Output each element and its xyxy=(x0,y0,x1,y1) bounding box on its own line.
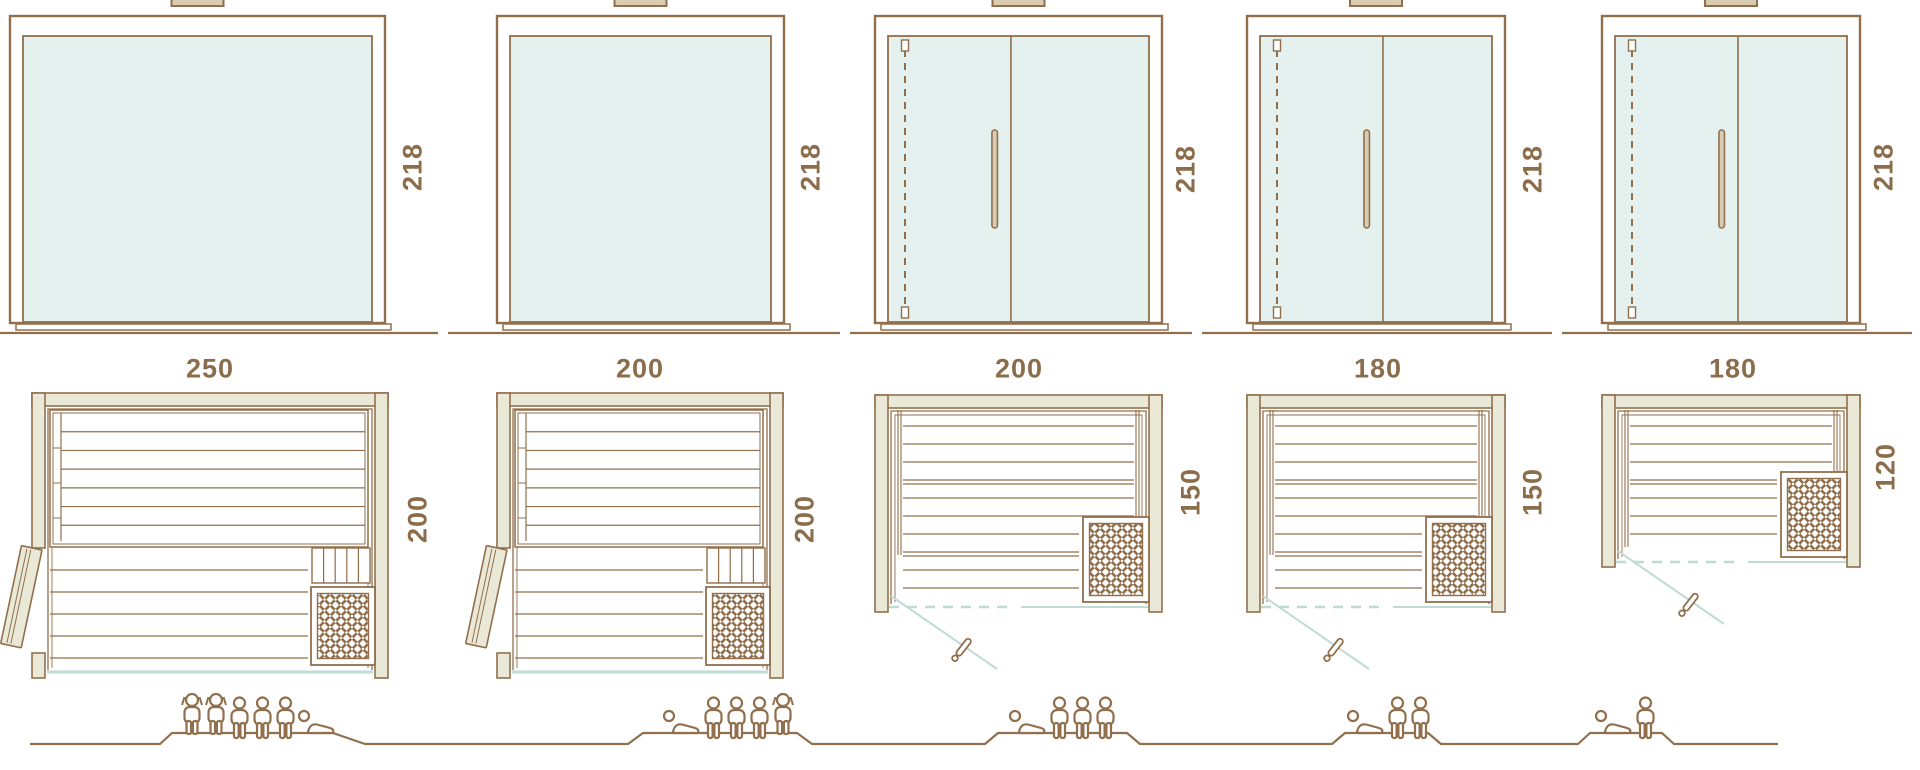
capacity-ground-row xyxy=(30,694,1778,744)
roof-vent-tab xyxy=(615,0,667,6)
sitting-person-icon xyxy=(1052,698,1068,739)
model-3-floor-plan xyxy=(875,395,1162,669)
model-2-floor-plan xyxy=(466,393,783,678)
upper-bench xyxy=(50,410,368,547)
model-1-depth-label: 200 xyxy=(403,495,434,543)
model-3-front-elevation xyxy=(850,0,1192,333)
model-4-height-label: 218 xyxy=(1518,145,1549,193)
model-5-front-elevation xyxy=(1562,0,1912,333)
model-4-width-label: 180 xyxy=(1354,354,1402,385)
bench-step xyxy=(312,548,370,583)
door-hinge-icon xyxy=(902,40,909,51)
model-2-height-label: 218 xyxy=(796,143,827,191)
glass-front xyxy=(1260,36,1492,322)
model-1-capacity-icons xyxy=(182,694,333,738)
door-handle-icon xyxy=(992,130,998,228)
model-4-front-elevation xyxy=(1202,0,1552,333)
model-2-front-elevation xyxy=(448,0,840,333)
model-1-height-label: 218 xyxy=(398,143,429,191)
door-handle-icon xyxy=(1364,130,1370,228)
standing-person-icon xyxy=(182,694,202,734)
standing-person-icon xyxy=(773,694,793,734)
model-1-width-label: 250 xyxy=(186,354,234,385)
model-2-capacity-icons xyxy=(664,694,793,738)
model-3-width-label: 200 xyxy=(995,354,1043,385)
sitting-person-icon xyxy=(1098,698,1114,739)
glass-front xyxy=(1615,36,1847,322)
upper-bench xyxy=(515,410,763,547)
roof-vent-tab xyxy=(993,0,1045,6)
lying-person-icon xyxy=(1596,711,1630,733)
model-1-floor-plan xyxy=(1,393,388,678)
door-hinge-icon xyxy=(1274,40,1281,51)
sitting-person-icon xyxy=(1390,698,1406,739)
door-hinge-icon xyxy=(902,307,909,318)
sitting-person-icon xyxy=(1638,698,1654,739)
open-wood-door xyxy=(1,546,42,648)
glass-front xyxy=(23,36,372,322)
door-handle-icon xyxy=(1719,130,1725,228)
roof-vent-tab xyxy=(1705,0,1757,6)
model-4-floor-plan xyxy=(1247,395,1505,669)
bench-step xyxy=(707,548,765,583)
sitting-person-icon xyxy=(232,698,248,739)
lying-person-icon xyxy=(664,711,698,733)
door-hinge-icon xyxy=(1274,307,1281,318)
model-2-depth-label: 200 xyxy=(790,495,821,543)
model-2-width-label: 200 xyxy=(616,354,664,385)
roof-vent-tab xyxy=(1350,0,1402,6)
model-1-front-elevation xyxy=(0,0,438,333)
model-4-depth-label: 150 xyxy=(1518,468,1549,516)
lying-person-icon xyxy=(299,711,333,733)
sitting-person-icon xyxy=(1413,698,1429,739)
model-5-height-label: 218 xyxy=(1869,143,1900,191)
sitting-person-icon xyxy=(1075,698,1091,739)
sauna-size-diagram: 250 200 200 180 180 218 218 218 218 218 … xyxy=(0,0,1920,770)
glass-front xyxy=(510,36,771,322)
sitting-person-icon xyxy=(255,698,271,739)
lying-person-icon xyxy=(1348,711,1382,733)
model-3-depth-label: 150 xyxy=(1176,468,1207,516)
standing-person-icon xyxy=(206,694,226,734)
roof-vent-tab xyxy=(172,0,224,6)
lying-person-icon xyxy=(1010,711,1044,733)
door-hinge-icon xyxy=(1629,307,1636,318)
diagram-artwork xyxy=(0,0,1920,770)
sitting-person-icon xyxy=(752,698,768,739)
sitting-person-icon xyxy=(706,698,722,739)
sitting-person-icon xyxy=(278,698,294,739)
sitting-person-icon xyxy=(729,698,745,739)
model-5-floor-plan xyxy=(1602,395,1860,624)
model-3-height-label: 218 xyxy=(1171,145,1202,193)
model-5-depth-label: 120 xyxy=(1871,443,1902,491)
door-hinge-icon xyxy=(1629,40,1636,51)
open-wood-door xyxy=(466,546,507,648)
glass-front xyxy=(888,36,1149,322)
model-5-width-label: 180 xyxy=(1709,354,1757,385)
model-5-capacity-icons xyxy=(1596,698,1654,739)
